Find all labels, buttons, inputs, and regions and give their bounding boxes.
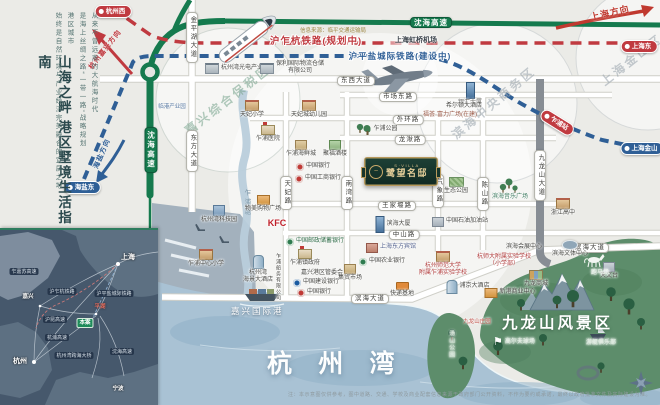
road-label: 东方大道: [186, 130, 198, 172]
project-logo-icon: ~: [369, 165, 383, 179]
truck-icon: [395, 282, 408, 290]
school-icon: [245, 100, 259, 111]
bkb-icon: [293, 279, 301, 287]
inset-city-label: 上海: [121, 254, 135, 262]
poi: 杭州师范大学附属乍浦实验学校: [419, 251, 467, 277]
poi: 汤山公园: [446, 330, 453, 358]
intro-text-4: 始终是自然环境与产业经济完美融合的宜居之地: [52, 12, 62, 191]
tower-icon: [465, 82, 474, 99]
tower-icon: [375, 216, 384, 233]
road-label: 王家堰路: [378, 201, 416, 211]
school-icon: [199, 249, 213, 260]
station-badge: 杭州西: [95, 5, 132, 18]
school-icon: [556, 198, 570, 209]
bb-icon: [213, 205, 225, 216]
school-icon: [302, 100, 316, 111]
bkg-icon: [359, 258, 367, 266]
poi: 乍浦镇政府: [290, 249, 320, 267]
scenic-area-label: 九龙山风景区: [502, 311, 613, 333]
poi: 滨海文体中心: [552, 240, 588, 258]
factory-icon: [260, 63, 274, 74]
bgr-icon: [432, 217, 444, 227]
poi: 浙江高中: [551, 198, 575, 217]
intro-text-3: 港区城市: [64, 12, 74, 46]
poi: 中国邮政储蓄银行: [286, 238, 344, 246]
poi: 浦京大酒店: [446, 280, 489, 294]
poi: 新港商业中心: [484, 288, 535, 298]
inset-city-label: 宁波: [112, 386, 123, 393]
bkr-icon: [296, 163, 304, 171]
road-label: 外环路: [393, 115, 424, 125]
project-name: 鹭望名邸: [386, 169, 428, 179]
gov-icon: [298, 249, 312, 259]
port-label: 嘉兴国际港: [231, 305, 284, 317]
poi: 乍浦医院: [256, 125, 280, 143]
poi: ⚑高尔夫球场: [493, 337, 535, 348]
poi: 滨海音乐广场: [492, 194, 528, 201]
poi: 物美购物广场: [245, 195, 281, 213]
hotel-icon: [446, 280, 457, 294]
road-label: 天妃路: [280, 176, 292, 210]
poi: 乍浦海鲜城: [286, 140, 316, 158]
poi: 保利国际物流仓储有限公司: [260, 61, 324, 75]
roundabout: [143, 65, 158, 80]
location-map: 山海之畔 港区墅境生活指南 从来不曾远离的大航海时代 是海上丝绸之路“一带一路”…: [0, 0, 660, 405]
bay-label: 杭 州 湾: [267, 344, 405, 380]
inset-route-badge: 沈海高速: [110, 348, 134, 355]
source-note: 信息来源：临平交通运输局: [300, 26, 366, 34]
road-label: 九龙山大道: [534, 150, 546, 201]
expressway-label: 沈海高速: [410, 17, 452, 28]
poi: 生态公园: [444, 177, 468, 195]
poi: 中国石油加油站: [432, 217, 488, 227]
inset-route-badge: 乍嘉苏高速: [9, 268, 38, 275]
poi: 跑马场: [591, 270, 609, 277]
disclaimer: 注：本示意图仅供参考，图中道路、交通、学校及商业配套信息来源于政府部门公开资料，…: [288, 391, 651, 398]
golf-icon: ⚑: [493, 337, 503, 348]
inset-site-badge: 本案: [76, 318, 93, 328]
bkg-icon: [286, 238, 294, 246]
poi: 杭州湾科技园: [201, 205, 237, 224]
road-label: 滨海大道: [351, 294, 389, 304]
poi: 杭州湾海景大酒店: [243, 255, 273, 284]
poi: 中国银行: [297, 289, 331, 297]
road-label: 陈山路: [477, 177, 489, 211]
poi: 天妃城幼儿园: [291, 100, 327, 119]
road-label: 龙湫路: [395, 135, 426, 145]
poi: 希尔顿大酒店: [446, 103, 482, 110]
poi: 乍浦中心小学: [188, 249, 224, 268]
expressway-label: 沈海高速: [145, 127, 158, 173]
bkr-icon: [297, 289, 305, 297]
poi: 上海东方宾馆: [366, 243, 416, 253]
school-icon: [436, 251, 450, 262]
poi: 临港产业园: [158, 104, 186, 111]
poi: 乍浦船务有限公司: [275, 253, 281, 301]
poi: 中国建设银行: [293, 279, 339, 287]
poi: 中国银行: [296, 163, 330, 171]
project-plaque: ~ S·VILLA 鹭望名邸: [364, 157, 438, 186]
intro-text-1: 从来不曾远离的大航海时代: [88, 12, 98, 114]
poi: 上海虹桥机场: [395, 37, 437, 45]
road-label: 东西大道: [337, 76, 375, 86]
bc-icon: [529, 270, 543, 280]
gov-icon: [261, 125, 275, 135]
poi: 福荟·富力广场(在建): [423, 112, 477, 119]
railway-label: 沪平盐城际铁路(建设中): [349, 51, 452, 61]
road-label: 南湾路: [341, 176, 353, 210]
road-label: 金平湖大道: [186, 12, 198, 63]
mall-icon: [256, 195, 269, 205]
poi: 杭师大附属实验学校（小学部）: [477, 254, 531, 268]
stad-icon: [562, 240, 578, 250]
inset-city-label: 杭州: [13, 358, 27, 366]
hotel-icon: [252, 255, 263, 269]
poi: 集贸市场: [338, 264, 362, 282]
field-icon: [448, 177, 463, 187]
poi: 九龙商城: [524, 270, 548, 288]
station-badge: 上海东: [621, 40, 658, 53]
inset-route-badge: 沪昆高速: [43, 316, 67, 323]
station-icon: [625, 146, 630, 151]
station-icon: [99, 9, 104, 14]
inset-route-badge: 杭州湾跨海大桥: [54, 352, 93, 359]
bt-icon: [295, 140, 307, 150]
poi: 乍浦公园: [362, 125, 397, 135]
poi: 中国工商银行: [295, 175, 341, 183]
station-icon: [625, 44, 630, 49]
bkr-icon: [295, 175, 303, 183]
railway-label: 沪乍杭铁路(规划中): [270, 36, 362, 47]
mall-icon: [484, 288, 497, 298]
poi: 嘉兴港区管委会: [301, 270, 343, 277]
br-icon: [366, 243, 378, 253]
poi: 滨海大厦: [375, 216, 410, 233]
bg2-icon: [329, 140, 341, 150]
poi: 天妃小学: [240, 100, 264, 119]
regional-inset-map: 上海杭州嘉兴宁波乍嘉苏高速沪乍杭铁路沪平盐城际铁路沪昆高速杭浦高速杭州湾跨海大桥…: [0, 228, 158, 405]
inset-route-badge: 沪乍杭铁路: [47, 288, 76, 295]
factory-icon: [205, 63, 219, 74]
poi: 九龙山庄园: [463, 319, 491, 326]
station-badge: 上海金山: [621, 142, 660, 155]
bt-icon: [344, 264, 356, 274]
inset-route-badge: 杭浦高速: [45, 334, 69, 341]
poi: 游艇俱乐部: [586, 340, 616, 347]
inset-pinghu-label: 平湖: [94, 304, 105, 311]
poi: 快递基地: [390, 282, 414, 298]
intro-text-2: 是海上丝绸之路“一带一路”战略规划: [76, 12, 86, 148]
poi: 中国农业银行: [359, 258, 405, 266]
road-label: 市场东路: [379, 92, 417, 102]
poi: 滨海会展中心: [506, 244, 542, 251]
inset-route-badge: 沪平盐城际铁路: [94, 290, 133, 297]
tree-icon: [362, 125, 371, 135]
inset-city-label: 嘉兴: [22, 294, 33, 301]
poi: 聚福酒楼: [323, 140, 347, 158]
poi: KFC: [268, 218, 287, 229]
